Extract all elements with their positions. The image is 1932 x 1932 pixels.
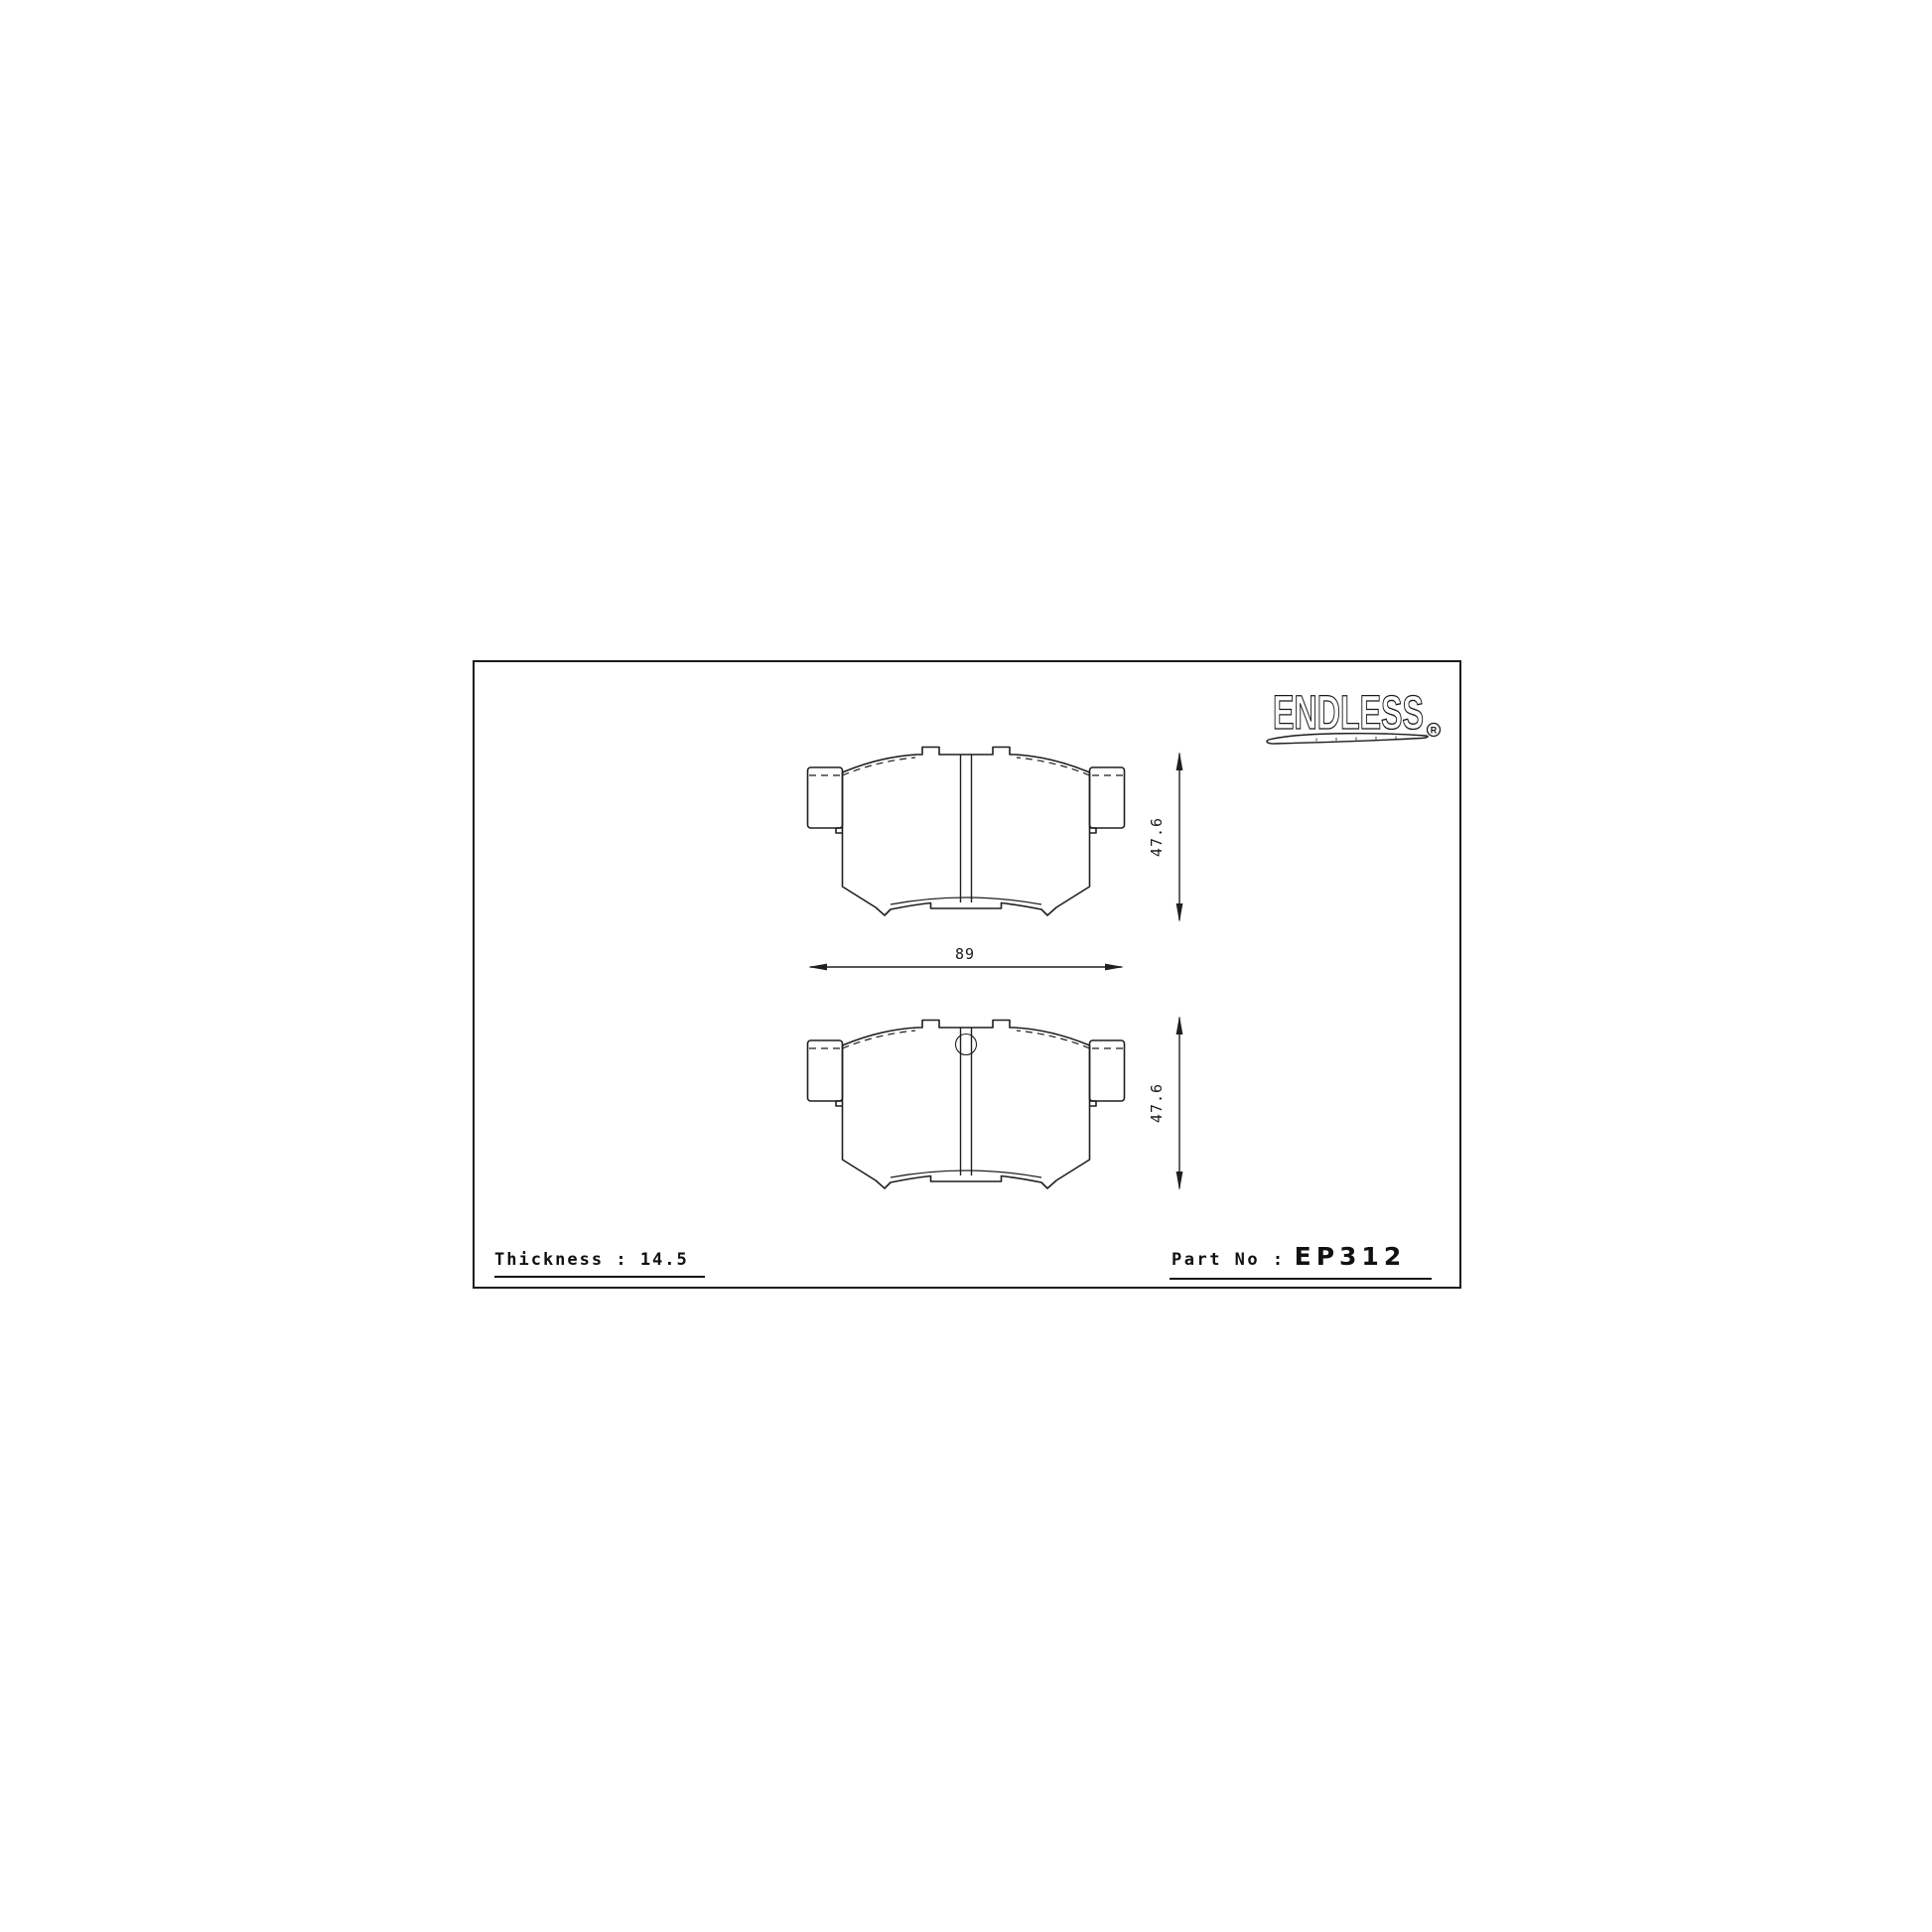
part-no-label: Part No : <box>1172 1250 1286 1270</box>
horizontal-dimension-width: 89 <box>806 946 1126 974</box>
pad-drawing-top-view <box>806 743 1126 937</box>
pad-left-ear-step <box>836 828 843 833</box>
pad-center-hole <box>956 1035 977 1055</box>
pad-right-ear-step <box>1090 1101 1097 1106</box>
pad-left-ear <box>808 1040 843 1101</box>
pad-drawing-bottom-view <box>806 1016 1126 1210</box>
pad-left-ear-step <box>836 1101 843 1106</box>
pad-friction-edge-arc <box>891 897 1041 904</box>
svg-text:R: R <box>1431 726 1438 736</box>
endless-logo: ENDLESS R <box>1257 680 1457 763</box>
arrowhead-left-icon <box>808 964 827 971</box>
pad-left-ear <box>808 767 843 828</box>
dimension-value: 47.6 <box>1148 1083 1166 1123</box>
arrowhead-up-icon <box>1176 1016 1183 1035</box>
registered-mark-icon: R <box>1428 724 1441 737</box>
arrowhead-down-icon <box>1176 903 1183 922</box>
thickness-label: Thickness : 14.5 <box>494 1250 705 1278</box>
arrowhead-right-icon <box>1105 964 1124 971</box>
pad-right-ear <box>1090 1040 1125 1101</box>
drawing-frame: ENDLESS R <box>473 660 1461 1289</box>
vertical-dimension-top: 47.6 <box>1138 750 1185 924</box>
pad-right-ear-step <box>1090 828 1097 833</box>
pad-center-slot <box>961 1028 972 1175</box>
pad-right-ear <box>1090 767 1125 828</box>
part-number-value: EP312 <box>1295 1242 1407 1271</box>
endless-logo-wordmark: ENDLESS R <box>1267 687 1441 744</box>
arrowhead-up-icon <box>1176 752 1183 770</box>
dimension-value: 47.6 <box>1148 817 1166 857</box>
pad-outline <box>843 1021 1090 1189</box>
dimension-value: 89 <box>955 945 975 963</box>
vertical-dimension-bottom: 47.6 <box>1138 1014 1185 1192</box>
endless-logo-text: ENDLESS <box>1273 687 1424 740</box>
pad-outline <box>843 748 1090 916</box>
part-number-block: Part No : EP312 <box>1170 1242 1432 1280</box>
arrowhead-down-icon <box>1176 1172 1183 1190</box>
pad-center-slot <box>961 755 972 902</box>
pad-friction-edge-arc <box>891 1171 1041 1177</box>
